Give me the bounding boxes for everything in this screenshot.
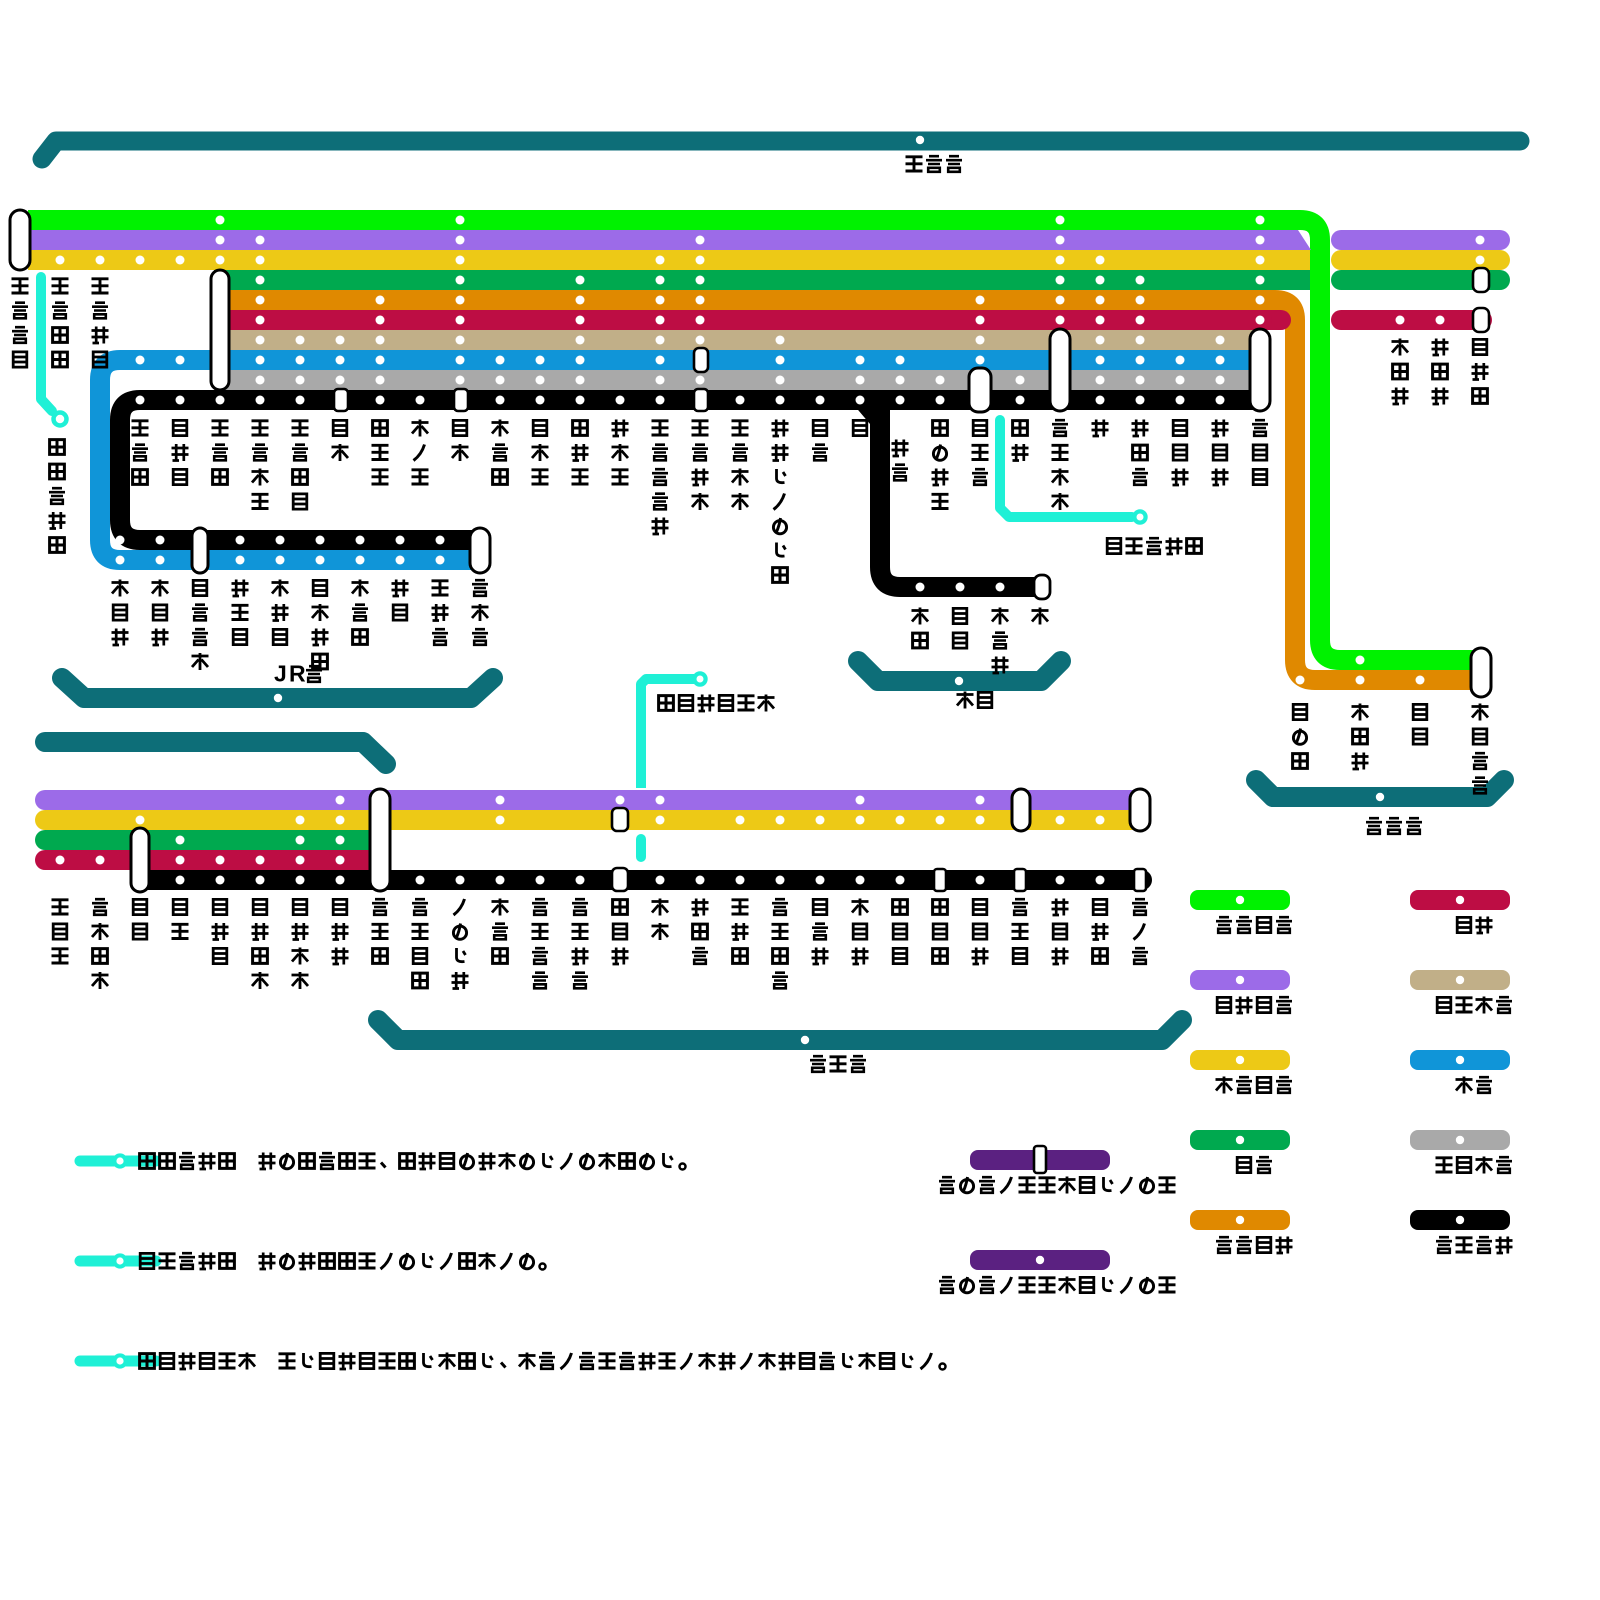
svg-text:R: R xyxy=(289,661,306,687)
svg-text:J: J xyxy=(274,661,287,687)
